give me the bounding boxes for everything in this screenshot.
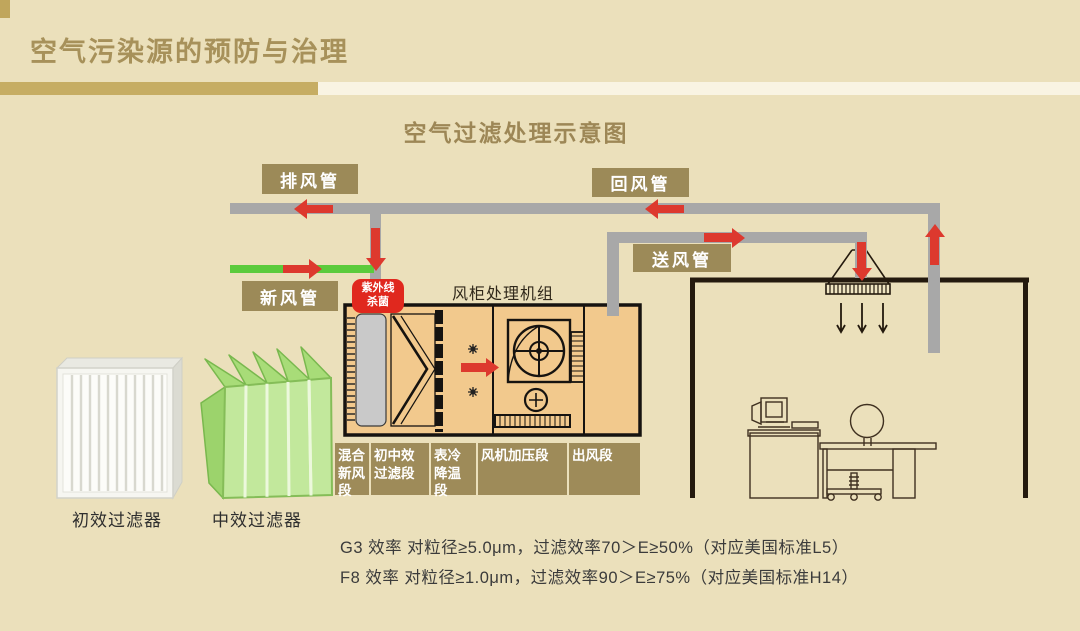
branch-down-arrow <box>371 228 380 258</box>
header-divider-light <box>318 82 1080 95</box>
supply-flow-arrow <box>704 233 732 242</box>
medium-filter-label: 中效过滤器 <box>197 506 317 531</box>
medium-filter-image <box>193 345 338 510</box>
mixing-panel <box>356 314 386 426</box>
page-subtitle: 空气过滤处理示意图 <box>330 114 702 148</box>
primary-filter-label: 初效过滤器 <box>57 506 177 531</box>
keyboard <box>792 422 818 428</box>
office-desk-drawing <box>748 398 936 500</box>
exhaust-return-duct <box>230 203 940 214</box>
uv-sterilizer-badge: 紫外线 杀菌 <box>352 279 404 313</box>
ahu-section-fan: 风机加压段 <box>478 443 567 495</box>
person-head <box>851 405 884 438</box>
ahu-section-filter: 初中效过滤段 <box>371 443 429 495</box>
ahu-section-mixing: 混合新风段 <box>335 443 369 495</box>
corner-accent <box>0 0 10 18</box>
exhaust-duct-label: 排风管 <box>262 164 358 194</box>
note-g3: G3 效率 对粒径≥5.0μm，过滤效率70＞E≥50%（对应美国标准L5） <box>340 534 849 558</box>
fresh-flow-arrow <box>283 265 309 273</box>
header-divider-gold <box>0 82 318 95</box>
diffuser-down-arrow <box>857 242 866 268</box>
supply-riser-duct <box>607 238 619 316</box>
exhaust-flow-arrow <box>307 205 333 213</box>
ahu-drawing <box>343 302 643 440</box>
diffuser-airflow-arrows <box>837 303 887 332</box>
fresh-air-duct-label: 新风管 <box>242 281 338 311</box>
ahu-section-outlet: 出风段 <box>569 443 640 495</box>
page-title: 空气污染源的预防与治理 <box>30 30 349 69</box>
room-return-up-arrow <box>930 237 939 265</box>
primary-filter-image <box>50 352 192 504</box>
slide: { "slide": { "title": "空气污染源的预防与治理", "su… <box>0 0 1080 631</box>
ahu-title: 风柜处理机组 <box>452 280 554 304</box>
ahu-section-cooling: 表冷降温段 <box>431 443 476 495</box>
note-f8: F8 效率 对粒径≥1.0μm，过滤效率90＞E≥75%（对应美国标准H14） <box>340 564 858 588</box>
return-flow-arrow <box>658 205 684 213</box>
return-duct-label: 回风管 <box>592 168 689 197</box>
